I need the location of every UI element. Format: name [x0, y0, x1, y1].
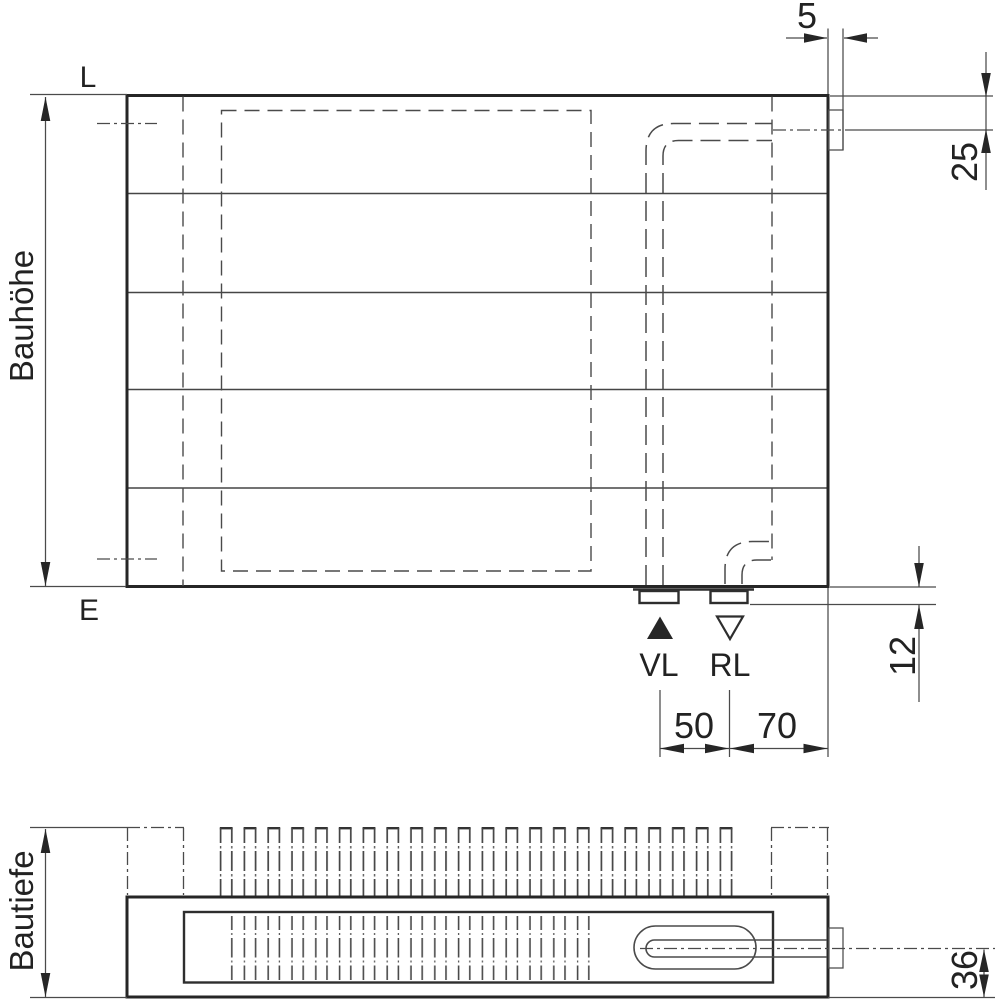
inner-convector-fins	[222, 916, 591, 980]
dim-50-value: 50	[674, 705, 714, 746]
dim-25-value: 25	[944, 142, 985, 182]
drawing-canvas: Bauhöhe L E 5 25 VL RL	[0, 0, 1000, 1000]
section-view: Bautiefe 36	[3, 827, 995, 998]
dim-bautiefe	[30, 828, 127, 998]
label-bautiefe: Bautiefe	[3, 850, 40, 971]
dim-5-value: 5	[797, 0, 817, 36]
vl-flow-arrow	[647, 617, 673, 640]
rl-return-arrow	[717, 617, 743, 640]
radiator-outline	[127, 96, 828, 587]
label-vl: VL	[639, 647, 678, 683]
radiator-dimension-drawing: Bauhöhe L E 5 25 VL RL	[0, 0, 1000, 1000]
water-channel	[634, 926, 756, 969]
label-bauhoehe: Bauhöhe	[3, 250, 40, 382]
dim-36-value: 36	[944, 950, 985, 990]
dim-70-value: 70	[757, 705, 797, 746]
label-e: E	[79, 594, 99, 627]
front-view: Bauhöhe L E 5 25 VL RL	[3, 0, 993, 757]
dim-bauhoehe	[30, 95, 127, 587]
dim-12-value: 12	[882, 636, 923, 676]
label-rl: RL	[710, 647, 751, 683]
rl-connection-nipple	[711, 591, 748, 603]
convector-fins	[220, 827, 736, 897]
vl-connection-nipple	[640, 591, 679, 603]
label-l: L	[80, 61, 97, 94]
